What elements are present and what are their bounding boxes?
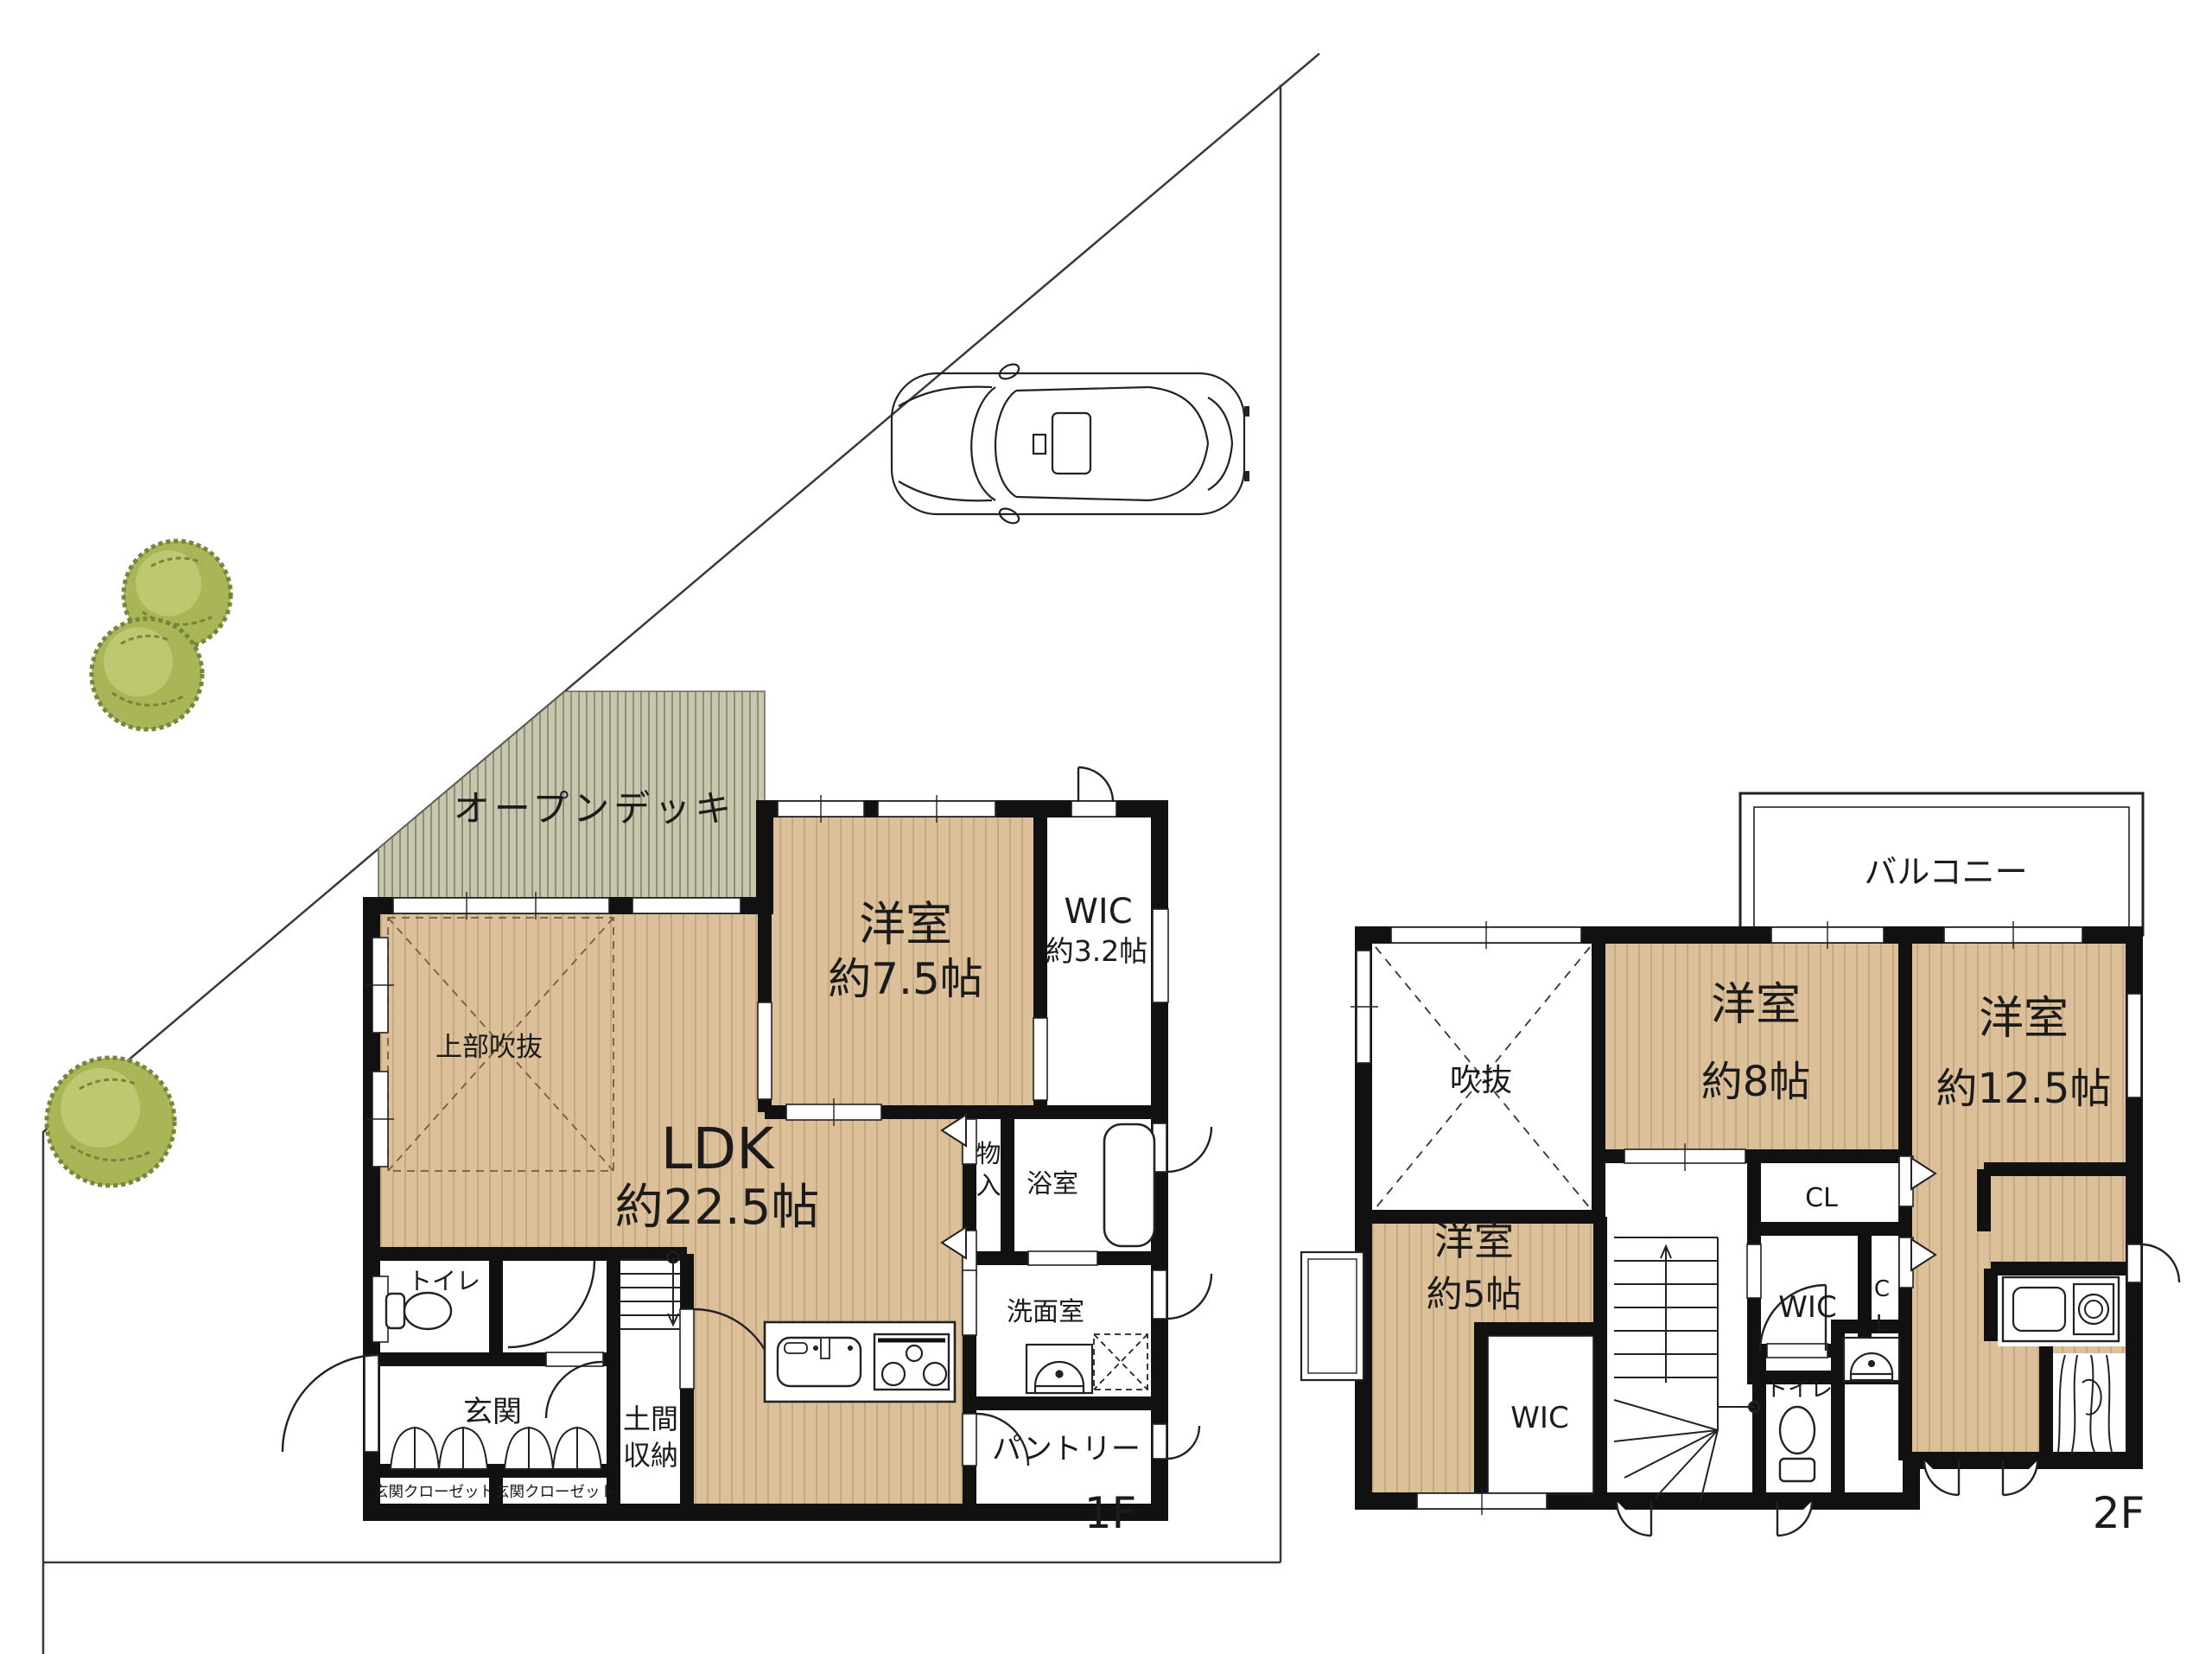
open-deck: オープンデッキ xyxy=(378,691,765,899)
svg-text:C: C xyxy=(1874,1276,1890,1302)
pantry-label: パントリー xyxy=(992,1432,1141,1466)
ldk-label: LDK xyxy=(661,1116,776,1182)
svg-text:入: 入 xyxy=(976,1171,1001,1200)
void-label: 吹抜 xyxy=(1450,1063,1512,1098)
svg-text:土間: 土間 xyxy=(623,1403,678,1435)
bedroom5-label: 洋室 xyxy=(1434,1218,1514,1264)
floor1-label: 1F xyxy=(1084,1488,1137,1538)
svg-text:収納: 収納 xyxy=(623,1439,678,1472)
bedroom75-label: 洋室 xyxy=(859,897,952,951)
cl-label: CL xyxy=(1805,1183,1838,1213)
toilet2f-label: トイレ xyxy=(1765,1377,1833,1403)
bedroom125-label: 洋室 xyxy=(1979,993,2069,1045)
floor-plan-drawing: オープンデッキ xyxy=(0,0,2212,1654)
floor-plan-page: オープンデッキ xyxy=(0,0,2212,1654)
wic1f-size-label: 約3.2帖 xyxy=(1046,934,1147,968)
bathtub-icon xyxy=(1104,1124,1154,1246)
entrance-label: 玄関 xyxy=(463,1395,522,1429)
svg-text:物: 物 xyxy=(976,1139,1001,1168)
bay-window xyxy=(1301,1252,1363,1380)
toilet1f-label: トイレ xyxy=(408,1267,480,1295)
floor2-label: 2F xyxy=(2093,1488,2145,1538)
toilet-icon-2f xyxy=(1780,1407,1815,1481)
toilet-icon-1f xyxy=(386,1293,451,1329)
wic-bottom-label: WIC xyxy=(1510,1401,1568,1435)
upper-void-label: 上部吹抜 xyxy=(435,1032,543,1063)
tree-icon xyxy=(92,619,202,729)
bedroom8-label: 洋室 xyxy=(1711,979,1801,1031)
floor2-plan: バルコニー 吹抜 洋室 約8帖 洋室 約12.5帖 洋室 約5帖 CL WIC … xyxy=(1301,793,2179,1538)
bedroom125-size-label: 約12.5帖 xyxy=(1936,1065,2112,1113)
closet-left-label: 玄関クローゼット xyxy=(373,1484,494,1501)
mini-kitchen-icon xyxy=(2003,1277,2119,1341)
washstand-icon-1f xyxy=(1027,1345,1092,1393)
car-icon xyxy=(892,361,1247,526)
washstand-icon-2f xyxy=(1844,1338,1899,1381)
tree-icon xyxy=(47,1058,175,1186)
svg-text:L: L xyxy=(1876,1311,1889,1337)
washroom-label: 洗面室 xyxy=(1007,1297,1084,1327)
bedroom8-size-label: 約8帖 xyxy=(1701,1058,1811,1106)
open-deck-label: オープンデッキ xyxy=(454,787,735,830)
ldk-size-label: 約22.5帖 xyxy=(615,1180,820,1236)
closet-right-label: 玄関クローゼット xyxy=(494,1484,615,1501)
wic-mid-label: WIC xyxy=(1778,1290,1836,1325)
wic1f-label: WIC xyxy=(1064,892,1132,932)
bathroom-label: 浴室 xyxy=(1027,1169,1078,1199)
bedroom75-size-label: 約7.5帖 xyxy=(828,954,983,1004)
tree-icons xyxy=(47,541,231,1186)
bedroom5-size-label: 約5帖 xyxy=(1427,1273,1522,1315)
balcony-label: バルコニー xyxy=(1864,853,2027,891)
kitchen-icon xyxy=(765,1322,955,1402)
